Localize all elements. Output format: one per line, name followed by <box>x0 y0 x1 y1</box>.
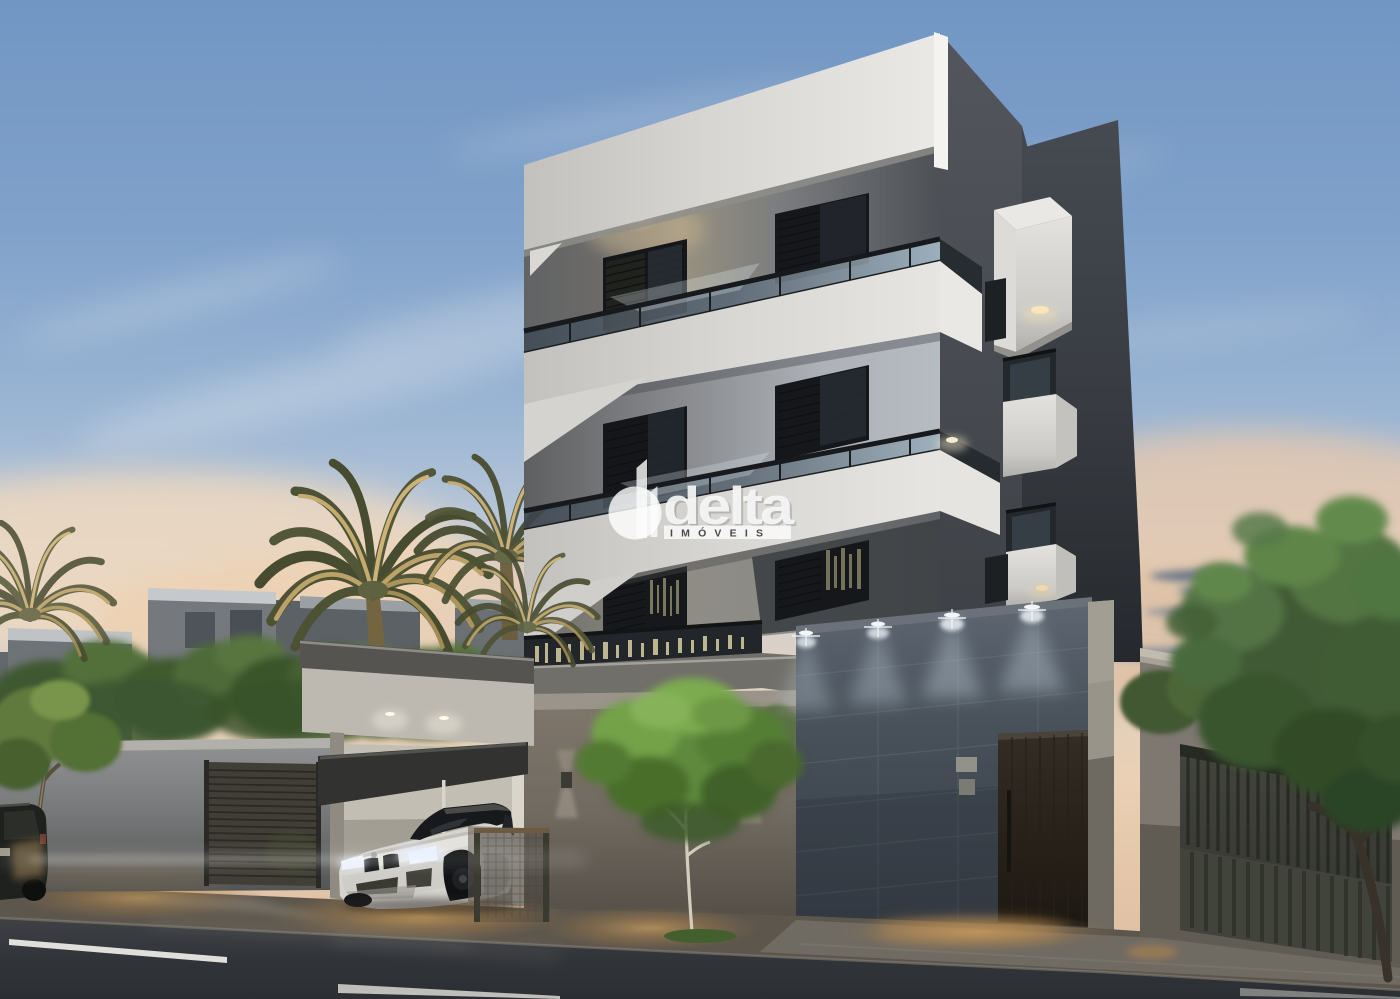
svg-text:IMÓVEIS: IMÓVEIS <box>670 527 771 540</box>
